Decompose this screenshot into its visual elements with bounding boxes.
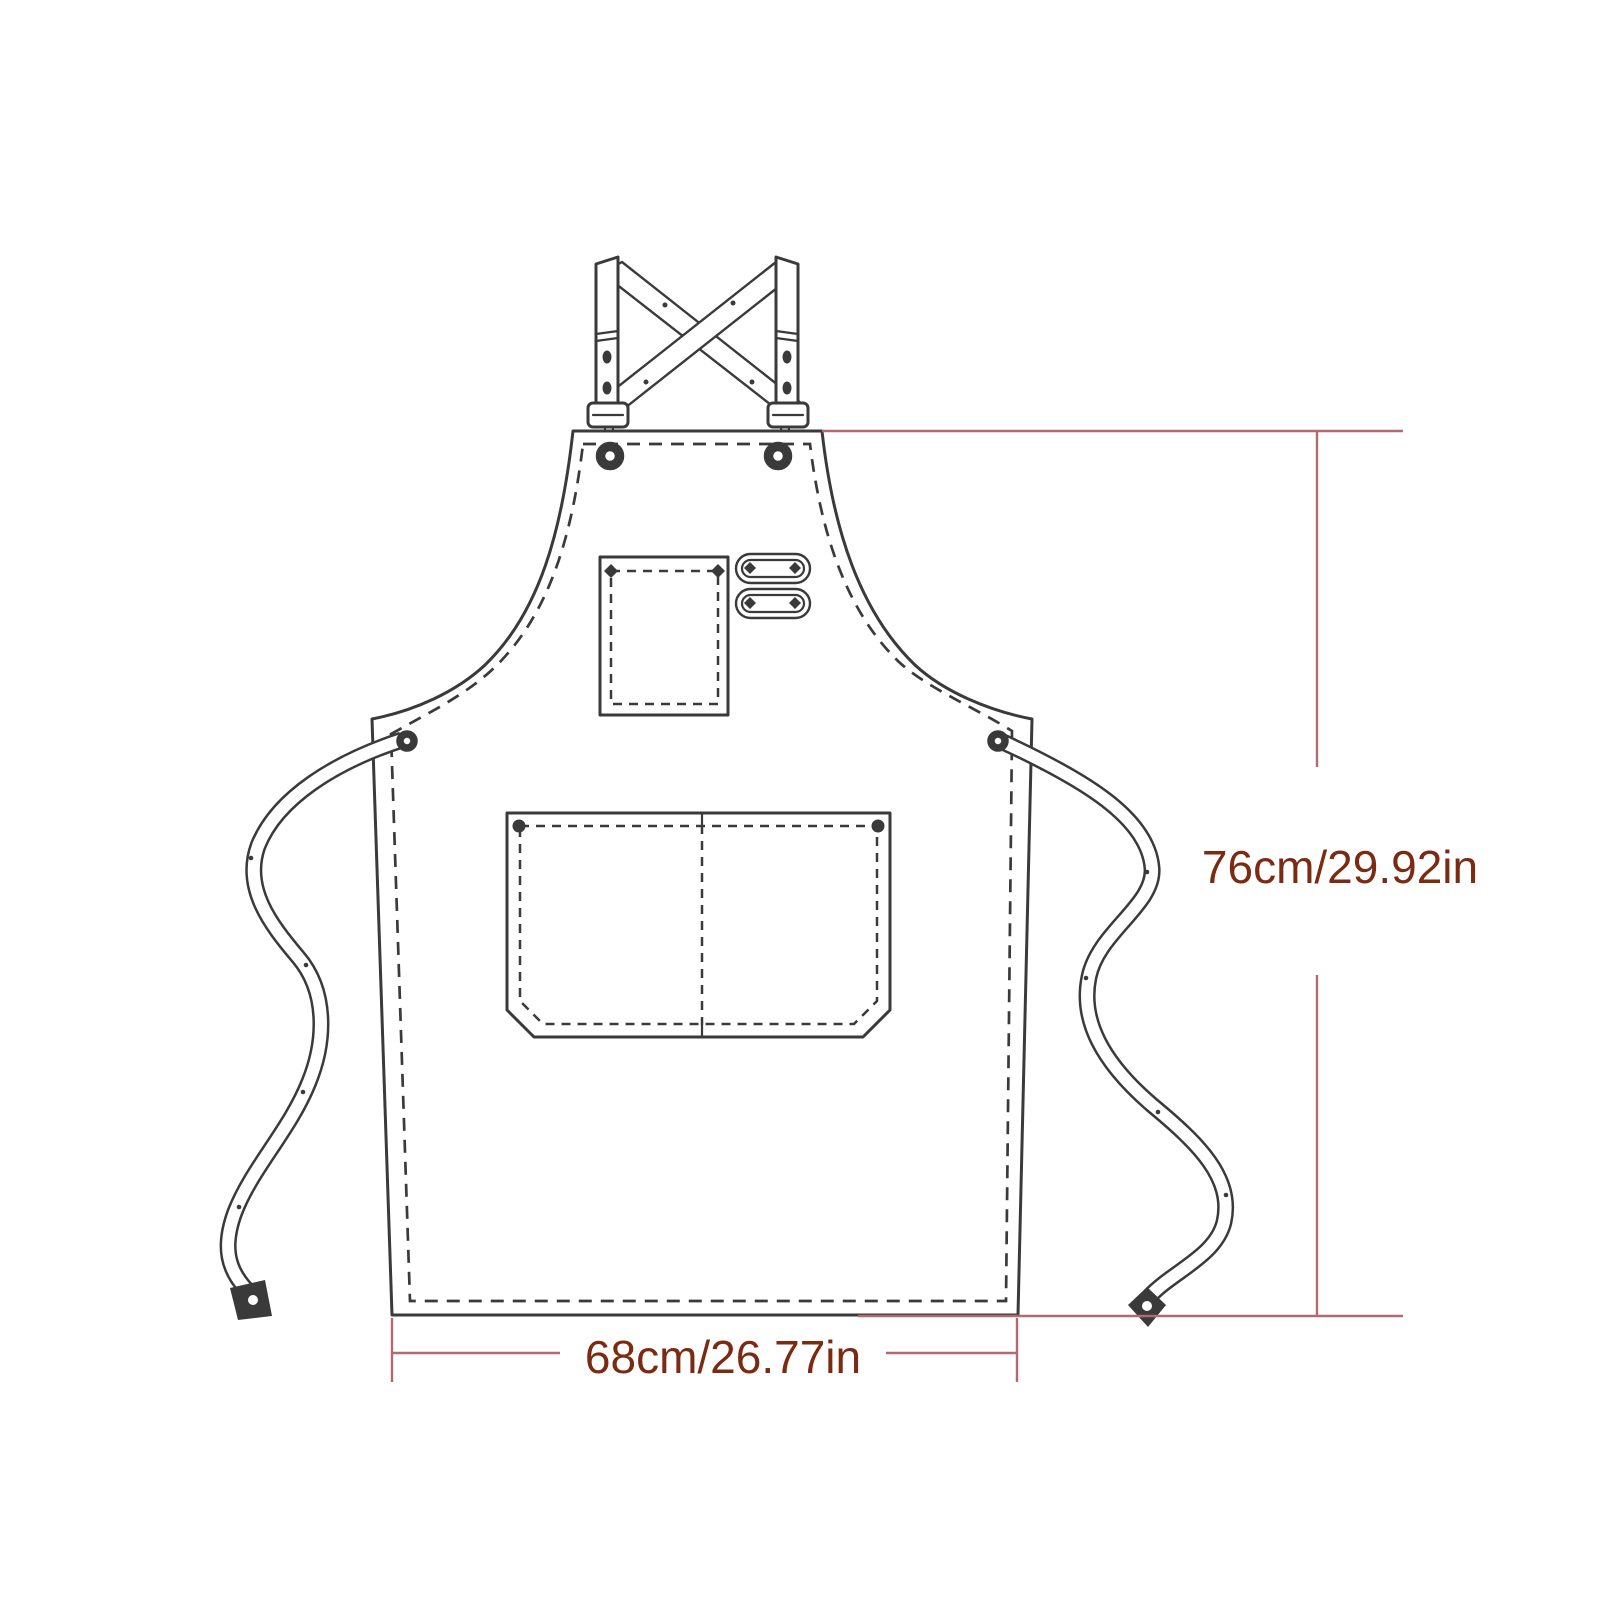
main-pocket [507, 813, 890, 1037]
chest-pocket [600, 557, 728, 715]
width-dimension-label: 68cm/26.77in [585, 1330, 861, 1384]
left-bib-grommet [601, 447, 620, 466]
left-waist-grommet [400, 734, 414, 748]
right-waist-tie [1003, 742, 1228, 1327]
pen-loop-2 [736, 589, 810, 618]
right-bib-grommet [769, 447, 788, 466]
pen-loop-1 [736, 554, 810, 583]
apron-size-diagram: 76cm/29.92in 68cm/26.77in [0, 0, 1600, 1600]
height-dimension-label: 76cm/29.92in [1202, 840, 1478, 894]
main-pocket-rivet-left [513, 820, 526, 833]
cross-straps [596, 262, 802, 415]
main-pocket-rivet-right [872, 820, 885, 833]
right-waist-grommet [991, 734, 1005, 748]
